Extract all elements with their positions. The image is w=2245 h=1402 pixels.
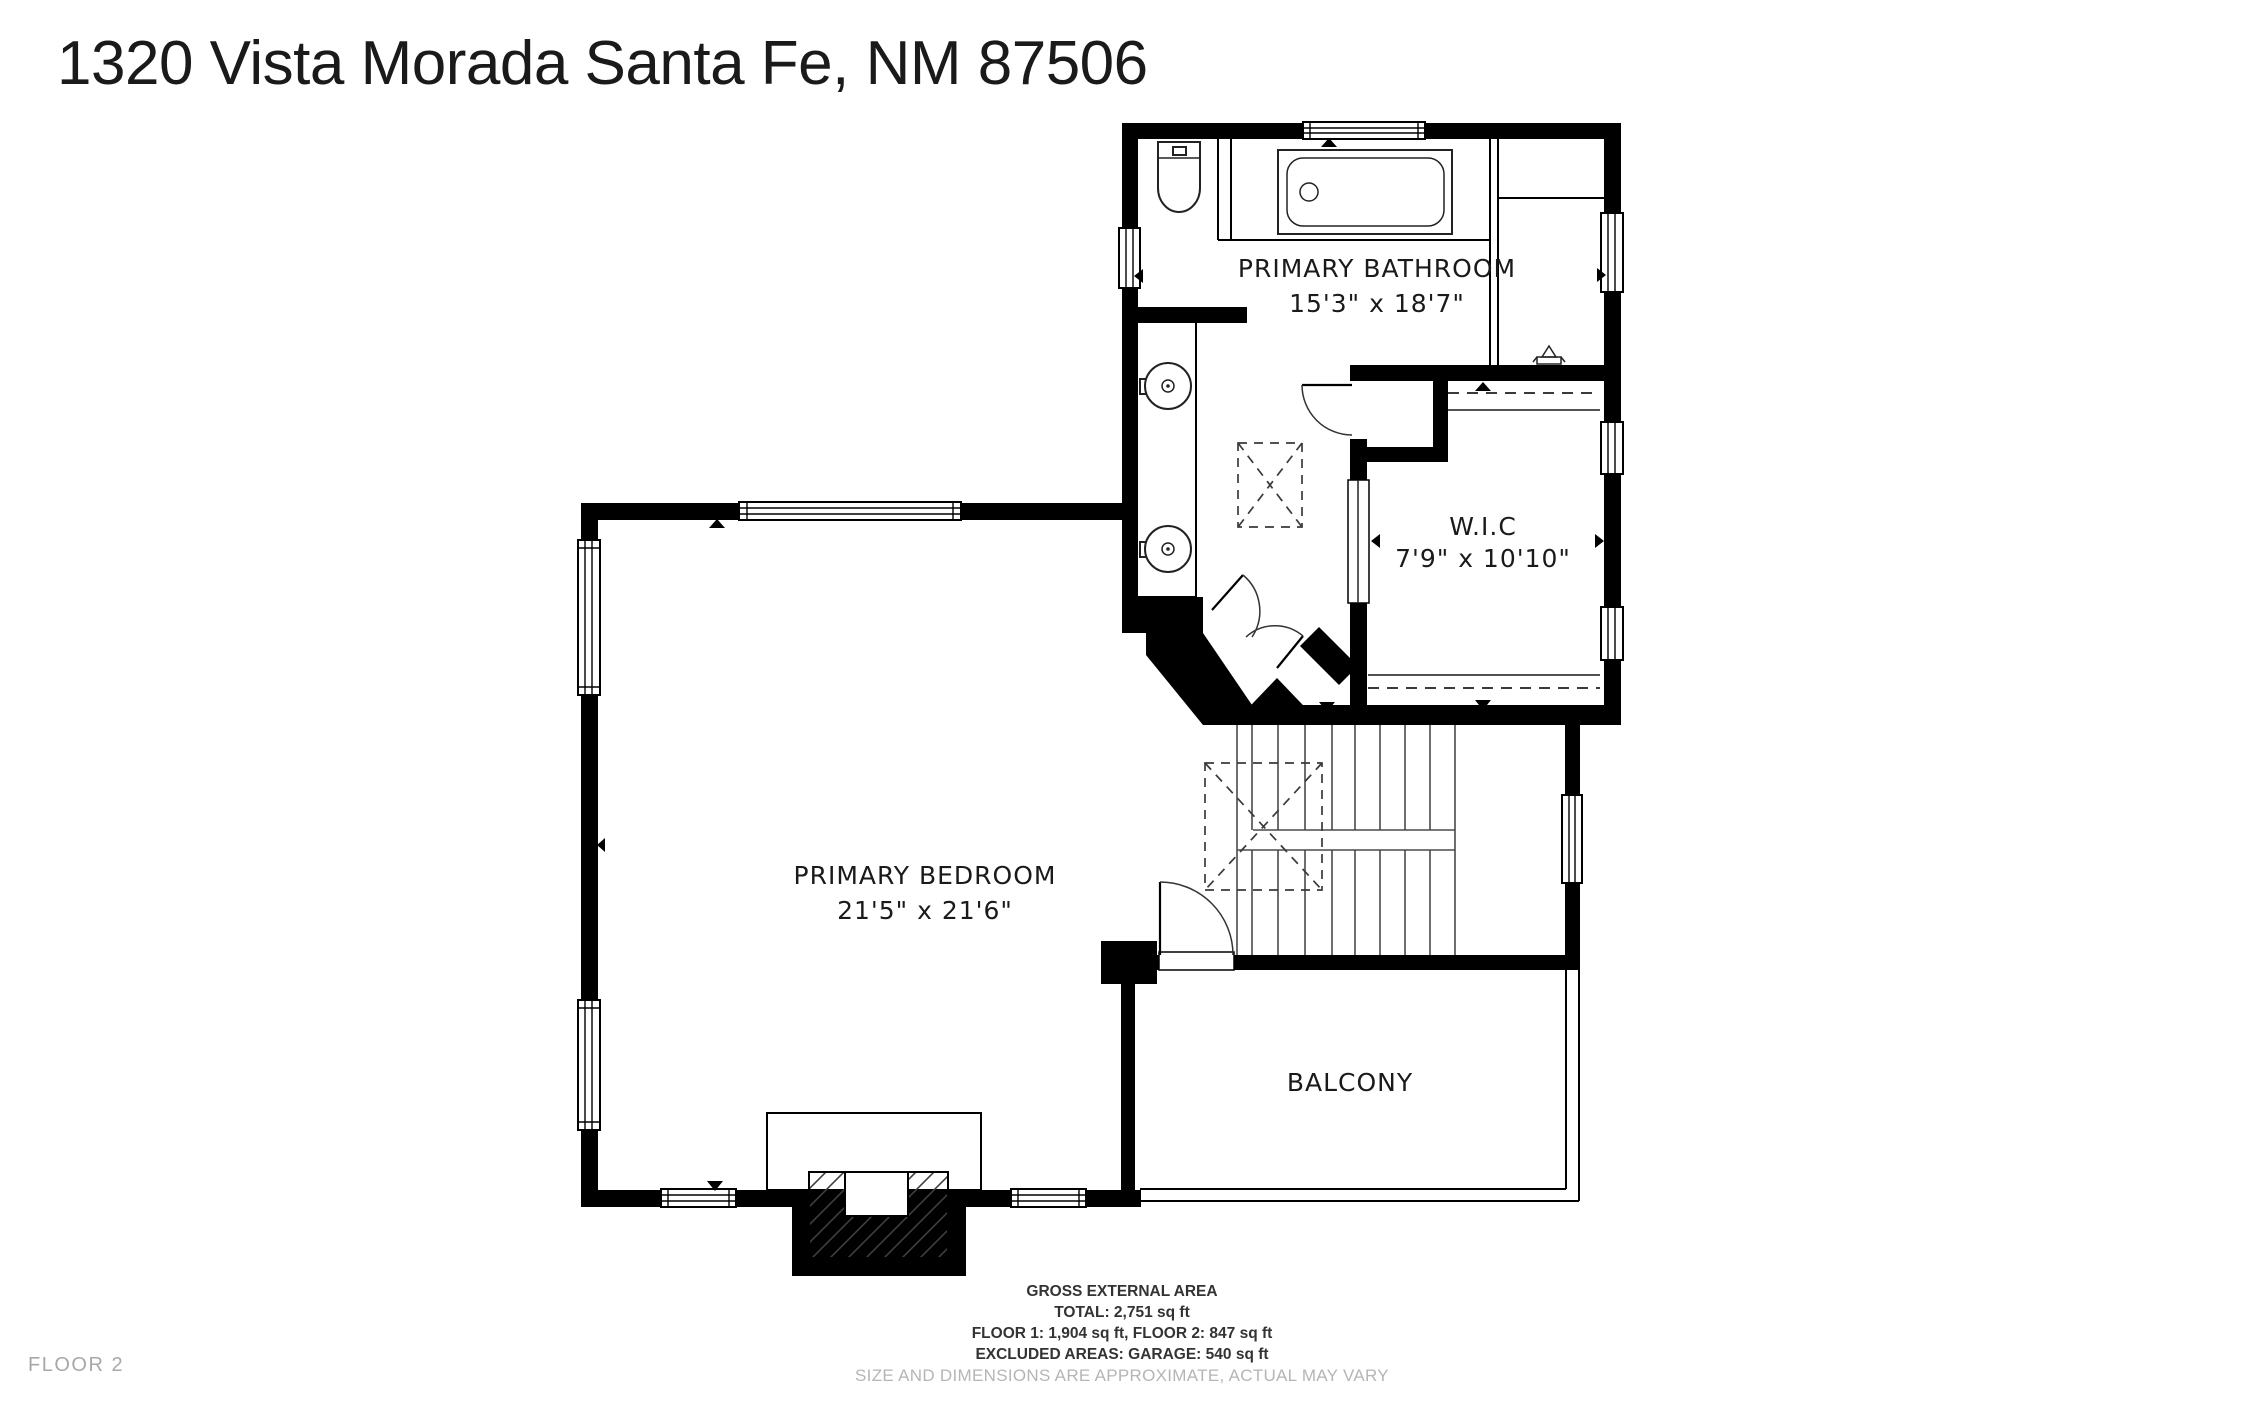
footer-disclaimer: SIZE AND DIMENSIONS ARE APPROXIMATE, ACT… <box>855 1366 1389 1385</box>
footer-floors: FLOOR 1: 1,904 sq ft, FLOOR 2: 847 sq ft <box>972 1325 1273 1342</box>
room-label-balcony: BALCONY <box>1287 1068 1413 1097</box>
window <box>739 502 961 520</box>
closet-door <box>1302 381 1369 439</box>
room-label-wic: W.I.C <box>1449 512 1517 541</box>
window <box>1303 122 1425 139</box>
firebox-opening <box>845 1172 908 1216</box>
page-title: 1320 Vista Morada Santa Fe, NM 87506 <box>57 29 1148 98</box>
wall-segment <box>1367 447 1448 462</box>
marker-left-icon <box>1371 534 1380 548</box>
sink-fixture <box>1140 363 1191 409</box>
bathtub-fixture <box>1278 150 1452 234</box>
fireplace <box>767 1113 981 1276</box>
window <box>1601 607 1623 660</box>
room-label-primary-bathroom: PRIMARY BATHROOM <box>1238 254 1516 283</box>
shower-area <box>1238 443 1302 527</box>
window <box>1601 213 1623 292</box>
wall-segment <box>1122 597 1203 633</box>
floor-number-label: FLOOR 2 <box>28 1354 124 1376</box>
footer-area-heading: GROSS EXTERNAL AREA <box>1026 1283 1217 1300</box>
sink-fixture <box>1140 526 1191 572</box>
wic-pocket-door <box>1348 480 1369 603</box>
balcony-door <box>1159 882 1234 970</box>
wall-segment <box>1138 307 1247 323</box>
stair-landing-lines <box>1237 830 1455 850</box>
window <box>1562 795 1582 883</box>
room-dims-primary-bathroom: 15'3" x 18'7" <box>1289 289 1465 318</box>
window <box>661 1189 736 1207</box>
footer-excluded: EXCLUDED AREAS: GARAGE: 540 sq ft <box>975 1346 1268 1363</box>
window <box>1011 1189 1086 1207</box>
marker-up-icon <box>1475 382 1491 391</box>
floor-plan-canvas: 1320 Vista Morada Santa Fe, NM 87506 PRI… <box>0 0 2245 1402</box>
window <box>1601 422 1623 474</box>
wall-segment <box>1121 968 1135 1190</box>
toilet-fixture <box>1158 142 1200 212</box>
marker-right-icon <box>1595 534 1604 548</box>
windows <box>578 122 1623 1207</box>
stair-treads-lower <box>1252 850 1430 955</box>
footer-total: TOTAL: 2,751 sq ft <box>1054 1304 1190 1321</box>
faucet-icon <box>1533 346 1565 364</box>
window <box>578 540 600 695</box>
bedroom-double-door <box>1212 575 1303 668</box>
wall-segment <box>1352 365 1621 381</box>
wall-segment <box>1146 633 1252 725</box>
marker-up-icon <box>709 519 725 528</box>
window <box>578 1000 600 1130</box>
stair-treads-upper <box>1252 725 1430 830</box>
room-dims-primary-bedroom: 21'5" x 21'6" <box>837 896 1013 925</box>
marker-left-icon <box>597 838 605 852</box>
stair-boundary <box>1237 725 1455 955</box>
room-dims-wic: 7'9" x 10'10" <box>1395 544 1571 573</box>
fixtures <box>1140 142 1600 688</box>
window <box>1119 228 1140 288</box>
wall-segment <box>1122 123 1138 597</box>
wall-segment <box>1300 627 1358 685</box>
floor-plan-page: { "title": "1320 Vista Morada Santa Fe, … <box>0 0 2245 1402</box>
walls <box>581 123 1621 1207</box>
room-label-primary-bedroom: PRIMARY BEDROOM <box>794 861 1057 890</box>
staircase <box>1205 725 1455 955</box>
